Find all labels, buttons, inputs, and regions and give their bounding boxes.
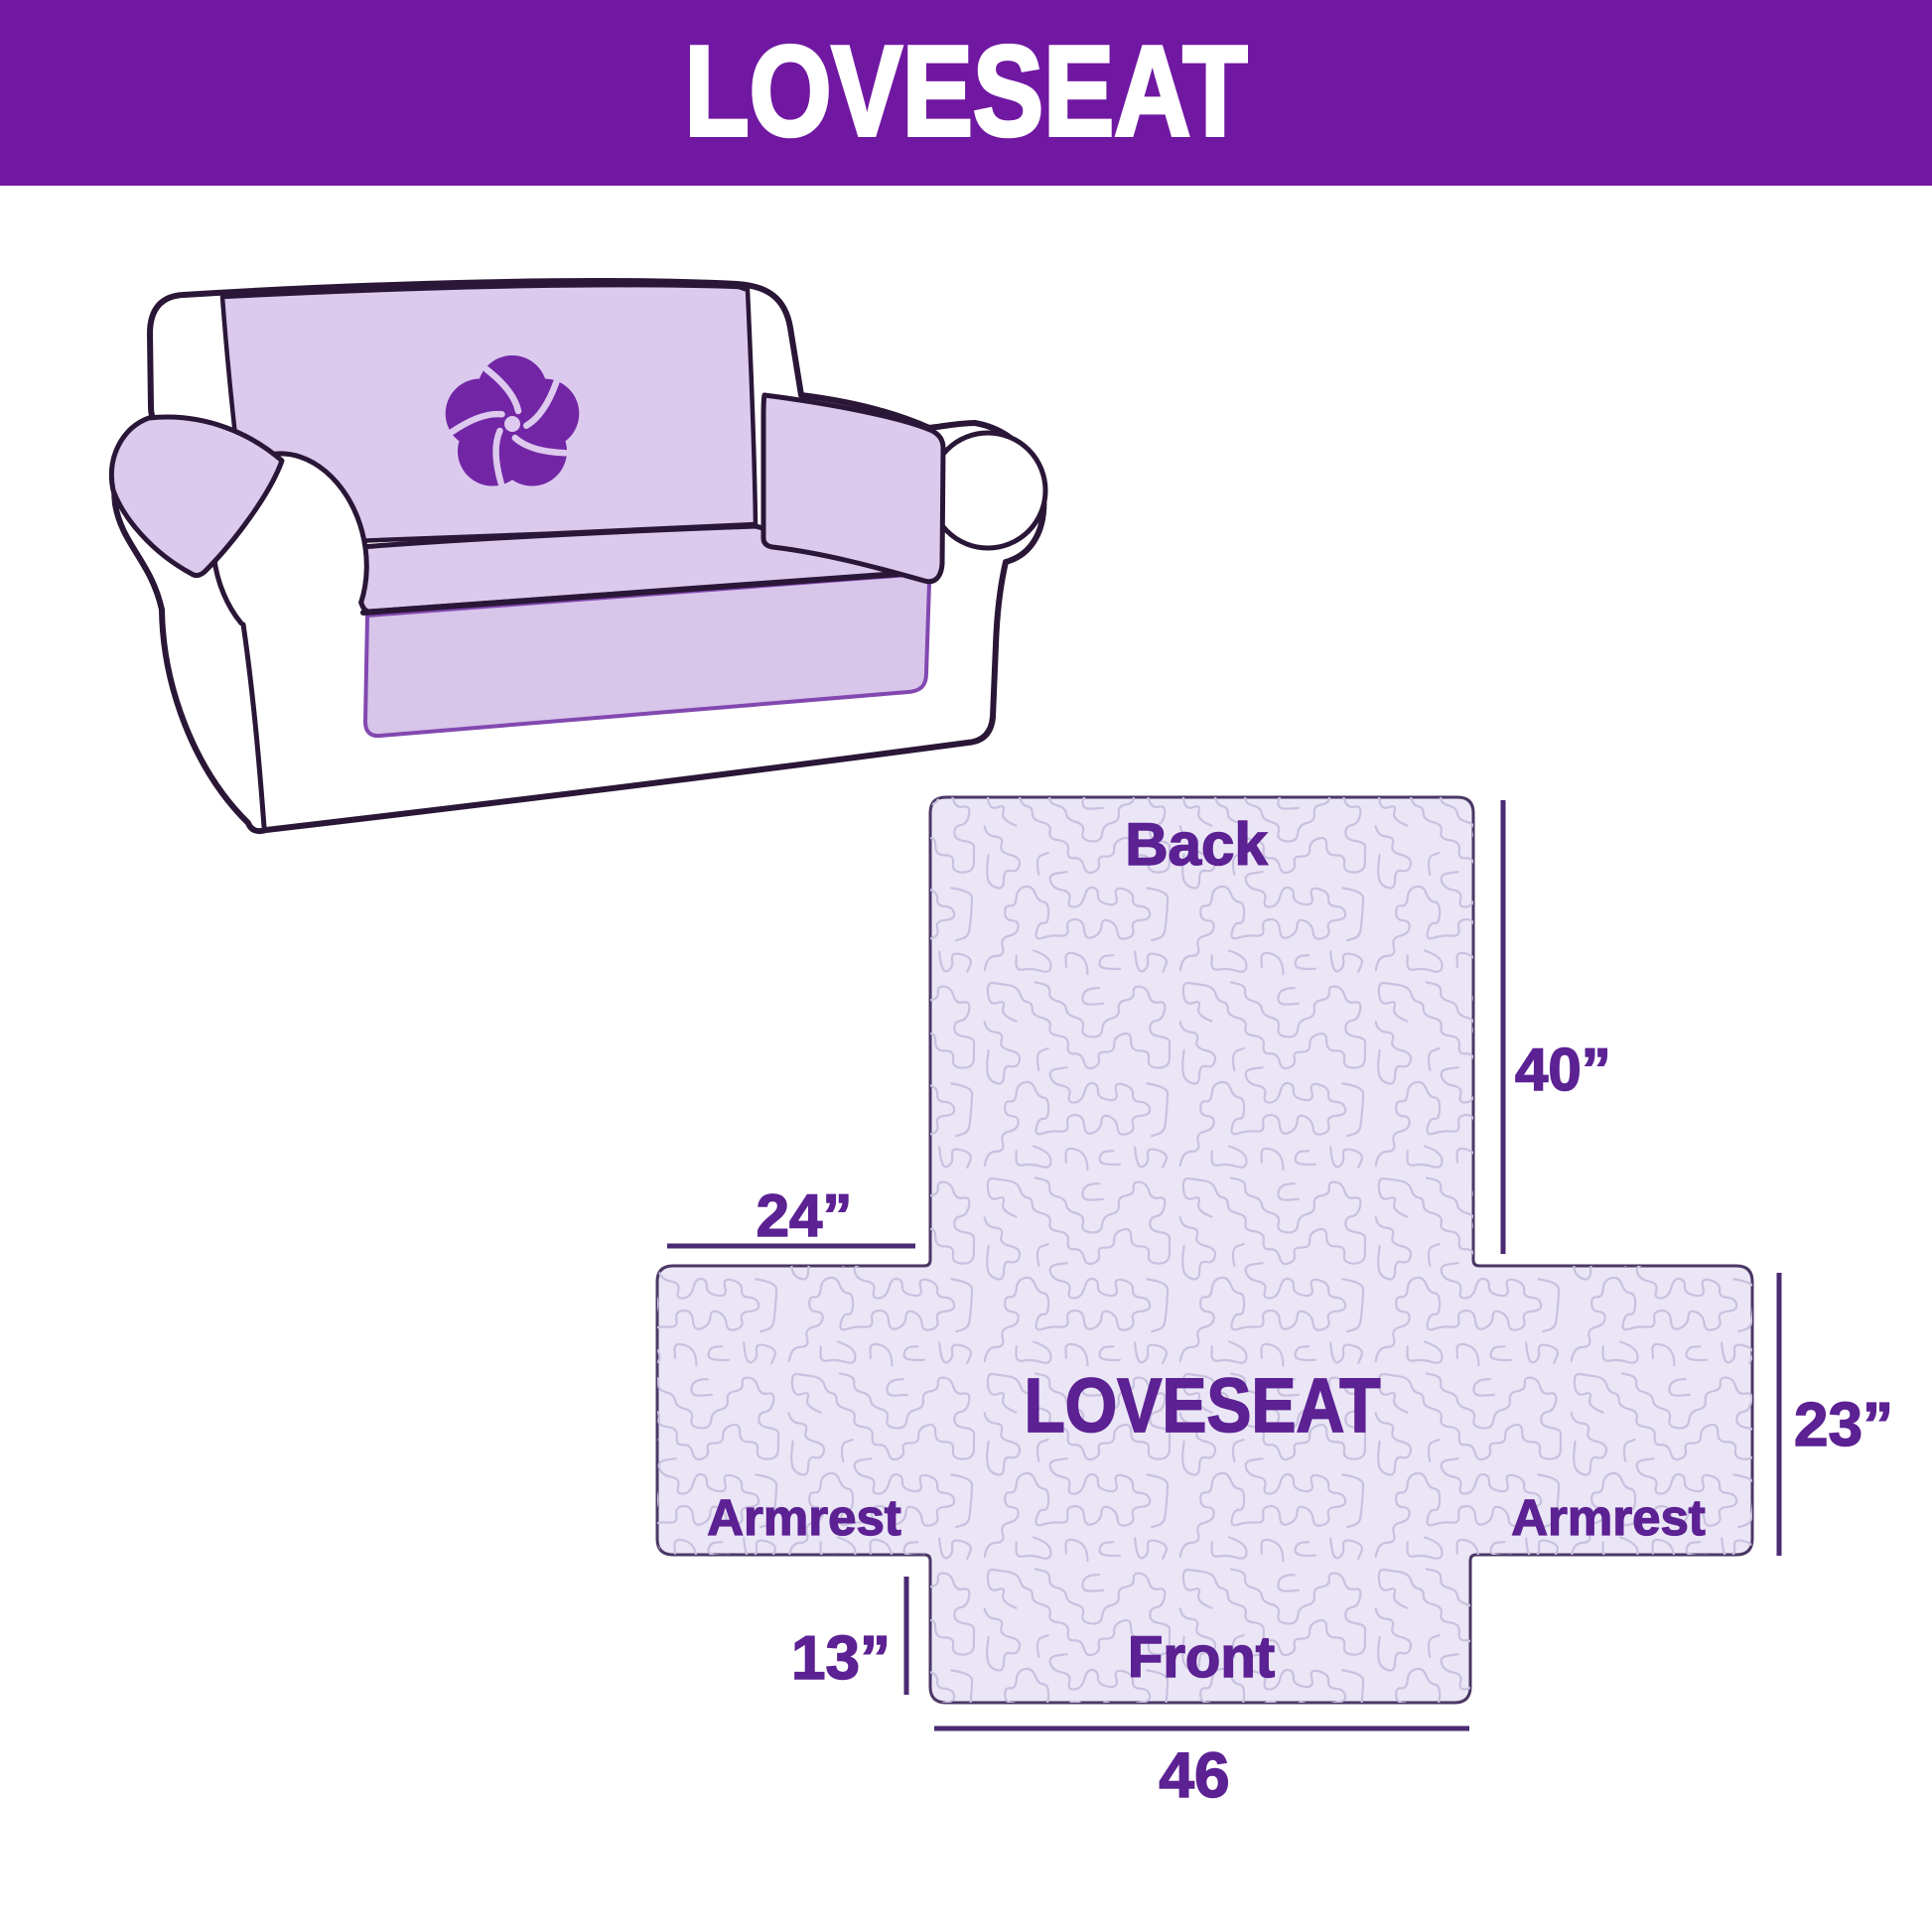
svg-text:Front: Front (1128, 1625, 1275, 1690)
svg-text:24”: 24” (757, 1182, 853, 1249)
svg-text:LOVESEAT: LOVESEAT (685, 20, 1248, 163)
svg-text:23”: 23” (1794, 1391, 1893, 1459)
svg-text:Back: Back (1125, 811, 1268, 878)
svg-text:LOVESEAT: LOVESEAT (1025, 1363, 1381, 1449)
svg-text:Armrest: Armrest (1511, 1489, 1706, 1546)
svg-text:13”: 13” (791, 1624, 891, 1693)
svg-text:Armrest: Armrest (707, 1489, 901, 1546)
svg-text:40”: 40” (1515, 1036, 1611, 1103)
svg-text:46: 46 (1159, 1739, 1229, 1811)
